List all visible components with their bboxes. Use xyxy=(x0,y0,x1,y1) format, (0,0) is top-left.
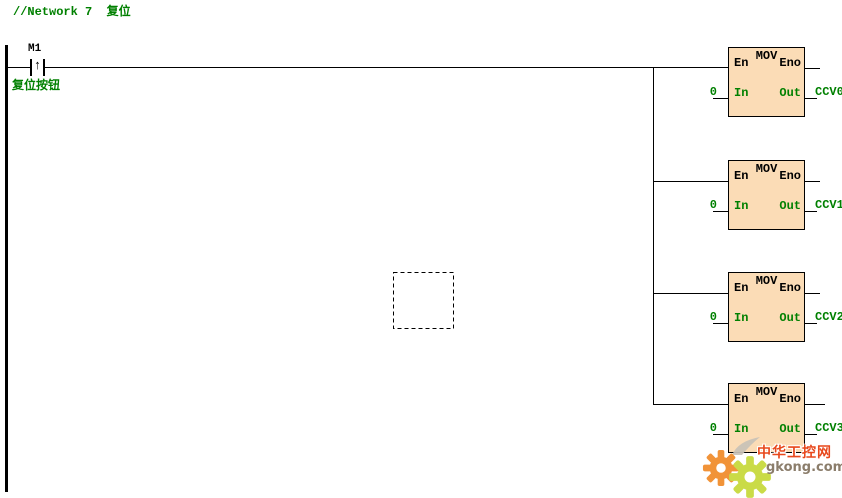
pin-eno: Eno xyxy=(779,169,801,183)
pin-en: En xyxy=(734,169,748,183)
pin-eno: Eno xyxy=(779,56,801,70)
selection-cursor-box[interactable] xyxy=(393,272,454,329)
mov-block-3[interactable]: MOV En Eno In Out xyxy=(728,272,805,342)
pin-in: In xyxy=(734,199,748,213)
rising-edge-icon: ↑ xyxy=(31,57,44,75)
pin-en: En xyxy=(734,392,748,406)
mov-block-1[interactable]: MOV En Eno In Out xyxy=(728,47,805,117)
eno-stub-4 xyxy=(805,404,825,405)
branch-trunk-wire xyxy=(653,67,654,405)
rung-wire-left xyxy=(8,67,30,68)
branch-wire-3 xyxy=(653,404,728,405)
branch-wire-1 xyxy=(653,181,728,182)
pin-en: En xyxy=(734,56,748,70)
eno-stub-1 xyxy=(805,68,820,69)
rung-wire-main xyxy=(45,67,728,68)
input-operand-2[interactable]: 0 xyxy=(700,198,717,212)
power-rail xyxy=(5,45,8,492)
watermark-site: gkong.com xyxy=(766,460,842,475)
pin-eno: Eno xyxy=(779,392,801,406)
watermark-title: 中华工控网 xyxy=(757,442,832,462)
eno-stub-3 xyxy=(805,293,820,294)
pin-in: In xyxy=(734,86,748,100)
pin-in: In xyxy=(734,311,748,325)
contact-comment: 复位按钮 xyxy=(12,76,60,93)
network-comment: //Network 7 复位 xyxy=(13,2,131,19)
pin-en: En xyxy=(734,281,748,295)
output-operand-3[interactable]: CCV2 xyxy=(815,310,842,324)
mov-block-2[interactable]: MOV En Eno In Out xyxy=(728,160,805,230)
pin-out: Out xyxy=(779,86,801,100)
input-operand-3[interactable]: 0 xyxy=(700,310,717,324)
branch-wire-2 xyxy=(653,293,728,294)
contact-m1[interactable]: M1 ↑ xyxy=(28,42,68,78)
input-operand-1[interactable]: 0 xyxy=(700,85,717,99)
pin-eno: Eno xyxy=(779,281,801,295)
pin-out: Out xyxy=(779,199,801,213)
contact-operand-label[interactable]: M1 xyxy=(28,43,41,55)
pin-out: Out xyxy=(779,311,801,325)
eno-stub-2 xyxy=(805,181,820,182)
output-operand-2[interactable]: CCV1 xyxy=(815,198,842,212)
ladder-editor-canvas: //Network 7 复位 M1 ↑ 复位按钮 MOV En Eno In O… xyxy=(0,0,842,498)
output-operand-1[interactable]: CCV0 xyxy=(815,85,842,99)
